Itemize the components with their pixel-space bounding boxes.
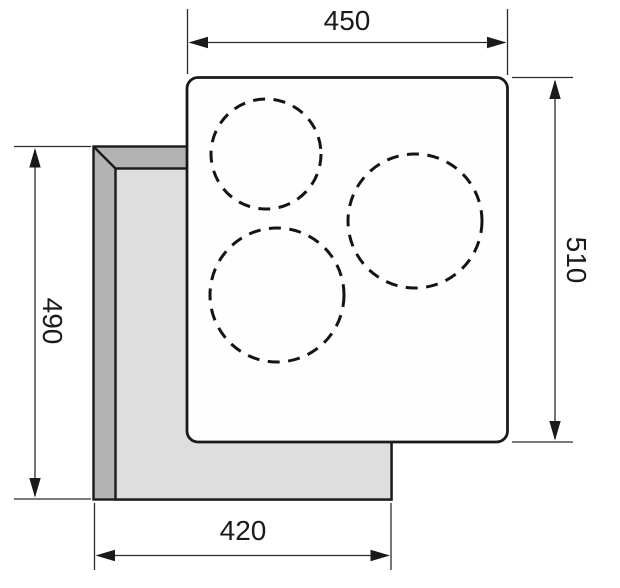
arrowhead-down-icon — [549, 421, 560, 441]
arrowhead-right-icon — [487, 37, 507, 48]
hob-installation-drawing: 450 510 490 420 — [0, 0, 620, 588]
arrowhead-left-icon — [96, 550, 116, 561]
dimension-left-height: 490 — [14, 147, 91, 500]
hob-panel — [187, 78, 508, 443]
dimension-right-height: 510 — [512, 78, 592, 443]
arrowhead-up-icon — [549, 80, 560, 100]
dimension-bottom-width: 420 — [95, 503, 392, 570]
arrowhead-left-icon — [189, 37, 209, 48]
dimension-drawing-svg: 450 510 490 420 — [0, 0, 620, 588]
arrowhead-down-icon — [29, 478, 40, 498]
arrowhead-right-icon — [371, 550, 391, 561]
dimension-top-width: 450 — [188, 5, 508, 75]
arrowhead-up-icon — [29, 148, 40, 168]
dimension-label-bottom: 420 — [220, 515, 267, 546]
dimension-label-top: 450 — [324, 5, 371, 36]
dimension-label-left: 490 — [37, 298, 68, 345]
dimension-label-right: 510 — [561, 237, 592, 284]
